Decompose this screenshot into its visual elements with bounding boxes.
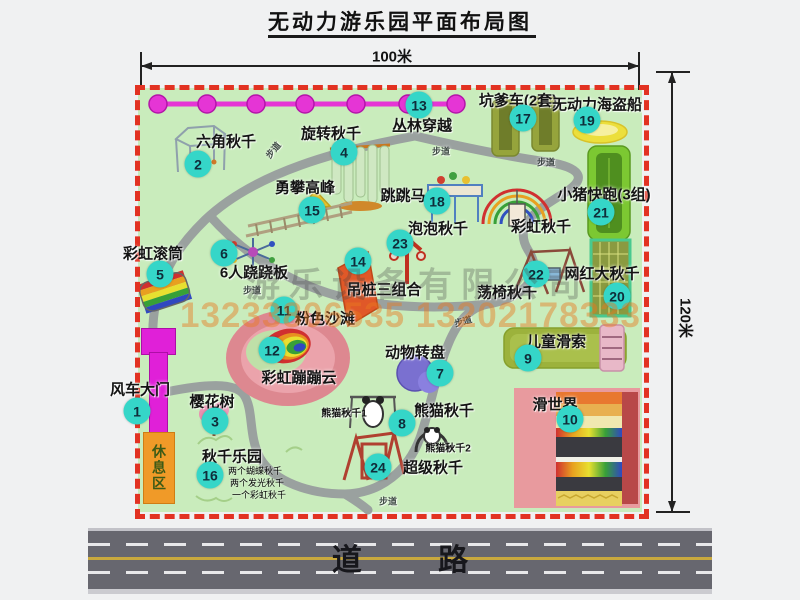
marker-21: 21 bbox=[588, 199, 615, 226]
marker-5: 5 bbox=[147, 261, 174, 288]
marker-4: 4 bbox=[331, 139, 358, 166]
label-jump-horse: 跳跳马 bbox=[380, 185, 425, 206]
marker-22: 22 bbox=[523, 261, 550, 288]
label-rainbow-cloud: 彩虹蹦蹦云 bbox=[261, 367, 336, 388]
page-title: 无动力游乐园平面布局图 bbox=[268, 6, 532, 36]
marker-1: 1 bbox=[124, 398, 151, 425]
marker-17: 17 bbox=[510, 105, 537, 132]
walkway-label-2: 步道 bbox=[432, 145, 450, 158]
label-panda-swing: 熊猫秋千 bbox=[414, 400, 474, 421]
label-climb-peak: 勇攀高峰 bbox=[275, 177, 335, 198]
walkway-label-4: 步道 bbox=[243, 284, 261, 297]
marker-7: 7 bbox=[427, 360, 454, 387]
dimension-height bbox=[656, 72, 690, 512]
label-hanging-piles: 吊桩三组合 bbox=[346, 279, 421, 300]
marker-24: 24 bbox=[365, 454, 392, 481]
label-rainbow-roller: 彩虹滚筒 bbox=[123, 243, 183, 264]
walkway-label-6: 步道 bbox=[379, 495, 397, 508]
marker-14: 14 bbox=[345, 248, 372, 275]
marker-13: 13 bbox=[406, 92, 433, 119]
label-panda-swing-2: 熊猫秋千2 bbox=[425, 440, 471, 455]
label-super-swing: 超级秋千 bbox=[403, 457, 463, 478]
marker-23: 23 bbox=[387, 230, 414, 257]
marker-15: 15 bbox=[299, 197, 326, 224]
height-dimension-label: 120米 bbox=[676, 298, 697, 338]
windmill-gate-icon bbox=[141, 328, 176, 355]
marker-6: 6 bbox=[211, 240, 238, 267]
marker-2: 2 bbox=[185, 151, 212, 178]
road-label: 道 路 bbox=[298, 535, 502, 579]
swing-park-note-3: 一个彩虹秋千 bbox=[232, 488, 286, 501]
walkway-label-3: 步道 bbox=[537, 156, 555, 169]
width-dimension-label: 100米 bbox=[372, 46, 412, 67]
marker-10: 10 bbox=[557, 406, 584, 433]
label-pink-beach: 粉色沙滩 bbox=[295, 308, 355, 329]
marker-9: 9 bbox=[515, 345, 542, 372]
marker-20: 20 bbox=[604, 283, 631, 310]
title-underline bbox=[268, 35, 536, 38]
label-big-swing: 网红大秋千 bbox=[564, 263, 639, 284]
marker-16: 16 bbox=[197, 462, 224, 489]
rest-area-label: 休息区 bbox=[149, 444, 169, 492]
label-windmill-gate: 风车大门 bbox=[110, 379, 170, 400]
marker-18: 18 bbox=[424, 188, 451, 215]
label-hexagon-swing: 六角秋千 bbox=[196, 131, 256, 152]
label-rainbow-swing: 彩虹秋千 bbox=[511, 216, 571, 237]
marker-11: 11 bbox=[271, 297, 298, 324]
playground-layout-map: 无动力游乐园平面布局图 bbox=[0, 0, 800, 600]
marker-19: 19 bbox=[574, 107, 601, 134]
road-shoulder bbox=[88, 589, 712, 594]
label-panda-swing-1: 熊猫秋千1 bbox=[321, 405, 367, 420]
marker-3: 3 bbox=[202, 408, 229, 435]
marker-8: 8 bbox=[389, 410, 416, 437]
rest-area: 休息区 bbox=[143, 432, 175, 504]
label-bubble-swing: 泡泡秋千 bbox=[408, 218, 468, 239]
marker-12: 12 bbox=[259, 337, 286, 364]
